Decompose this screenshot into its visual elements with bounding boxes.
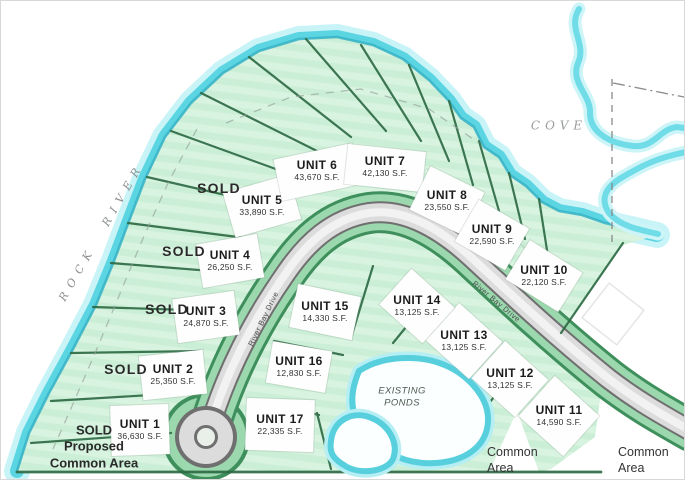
lot-label-unit-2: UNIT 225,350 S.F.	[150, 363, 195, 387]
unit-name: UNIT 13	[440, 329, 487, 342]
lot-label-unit-3: UNIT 324,870 S.F.	[183, 305, 228, 329]
lot-label-unit-16: UNIT 1612,830 S.F.	[275, 355, 322, 379]
unit-name: UNIT 16	[275, 355, 322, 368]
unit-sqft: 43,670 S.F.	[294, 173, 339, 183]
lot-label-unit-13: UNIT 1313,125 S.F.	[440, 329, 487, 353]
unit-sqft: 14,330 S.F.	[301, 314, 348, 324]
sold-label-2: SOLD	[162, 244, 206, 260]
lot-label-unit-15: UNIT 1514,330 S.F.	[301, 300, 348, 324]
unit-name: UNIT 4	[207, 249, 252, 262]
unit-name: UNIT 15	[301, 300, 348, 313]
unit-name: UNIT 5	[239, 194, 284, 207]
faint-lot-outline	[582, 283, 644, 345]
unit-sqft: 14,590 S.F.	[536, 418, 583, 428]
sold-label-3: SOLD	[145, 302, 189, 318]
unit-sqft: 12,830 S.F.	[275, 369, 322, 379]
unit-name: UNIT 7	[362, 155, 407, 168]
unit-sqft: 13,125 S.F.	[486, 381, 533, 391]
unit-name: UNIT 3	[183, 305, 228, 318]
unit-sqft: 23,550 S.F.	[424, 203, 469, 213]
cul-de-sac	[175, 406, 237, 468]
plat-map: UNIT 136,630 S.F. UNIT 225,350 S.F. UNIT…	[0, 0, 685, 480]
unit-sqft: 26,250 S.F.	[207, 263, 252, 273]
existing-ponds-label: EXISTING PONDS	[378, 386, 426, 411]
unit-sqft: 25,350 S.F.	[150, 377, 195, 387]
lot-label-unit-12: UNIT 1213,125 S.F.	[486, 367, 533, 391]
lot-label-unit-4: UNIT 426,250 S.F.	[207, 249, 252, 273]
unit-name: UNIT 6	[294, 159, 339, 172]
unit-sqft: 42,130 S.F.	[362, 169, 407, 179]
unit-sqft: 24,870 S.F.	[183, 319, 228, 329]
proposed-common-area-label: SOLD Proposed Common Area	[50, 423, 138, 472]
unit-name: UNIT 9	[469, 223, 514, 236]
lot-label-unit-7: UNIT 742,130 S.F.	[362, 155, 407, 179]
sold-label-1: SOLD	[197, 181, 241, 197]
unit-sqft: 22,590 S.F.	[469, 237, 514, 247]
unit-sqft: 22,335 S.F.	[256, 427, 303, 437]
cove-stream	[575, 9, 685, 234]
unit-name: UNIT 12	[486, 367, 533, 380]
lot-label-unit-8: UNIT 823,550 S.F.	[424, 189, 469, 213]
unit-name: UNIT 10	[520, 264, 567, 277]
lot-label-unit-17: UNIT 1722,335 S.F.	[256, 413, 303, 437]
lot-label-unit-11: UNIT 1114,590 S.F.	[536, 404, 583, 428]
unit-sqft: 33,890 S.F.	[239, 208, 284, 218]
lot-label-unit-10: UNIT 1022,120 S.F.	[520, 264, 567, 288]
unit-name: UNIT 14	[393, 294, 440, 307]
unit-sqft: 22,120 S.F.	[520, 278, 567, 288]
unit-sqft: 13,125 S.F.	[440, 343, 487, 353]
cove-label: COVE	[531, 119, 587, 132]
common-area-label-left: Common Area	[487, 445, 538, 476]
sold-label-4: SOLD	[104, 362, 148, 378]
unit-name: UNIT 17	[256, 413, 303, 426]
unit-sqft: 13,125 S.F.	[393, 308, 440, 318]
lot-label-unit-5: UNIT 533,890 S.F.	[239, 194, 284, 218]
lot-label-unit-6: UNIT 643,670 S.F.	[294, 159, 339, 183]
lot-label-unit-14: UNIT 1413,125 S.F.	[393, 294, 440, 318]
lot-label-unit-9: UNIT 922,590 S.F.	[469, 223, 514, 247]
unit-name: UNIT 2	[150, 363, 195, 376]
common-area-label-right: Common Area	[618, 445, 669, 476]
unit-name: UNIT 8	[424, 189, 469, 202]
unit-name: UNIT 11	[536, 404, 583, 417]
